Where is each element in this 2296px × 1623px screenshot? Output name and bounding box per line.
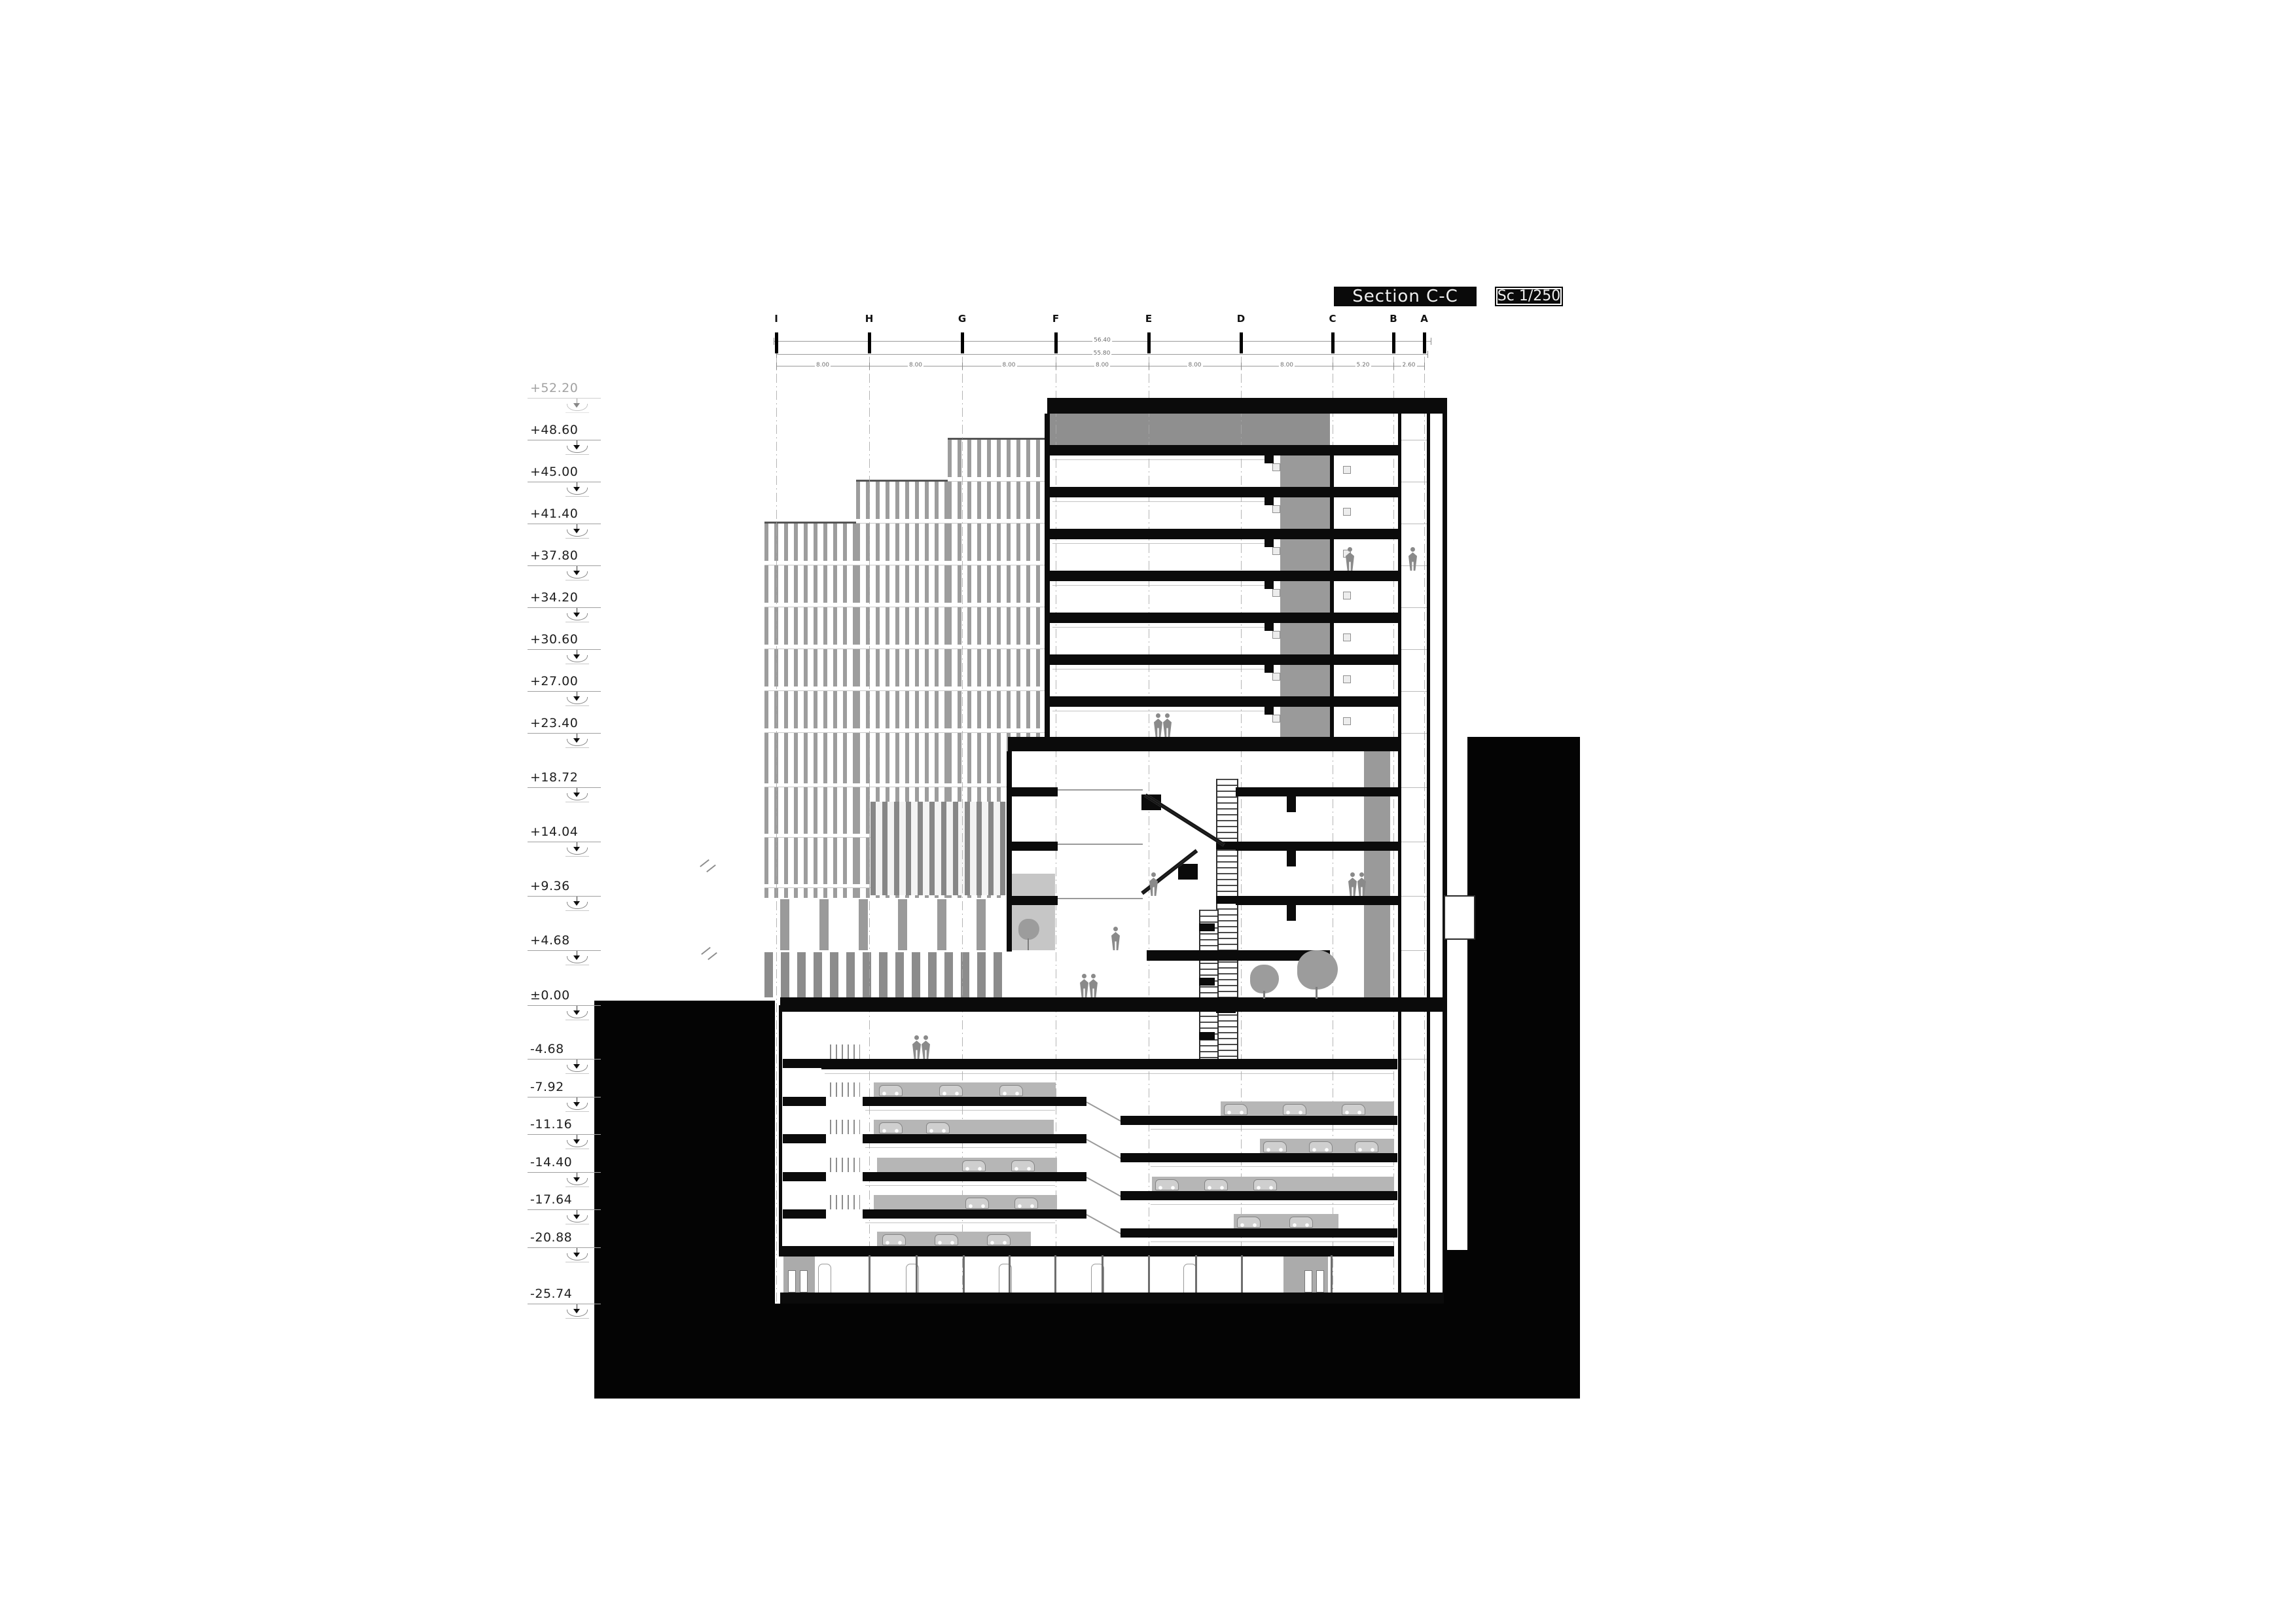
grid-tick: [775, 332, 778, 353]
side-slab-stub: [783, 1209, 826, 1219]
floor-slab: [1236, 842, 1398, 851]
floor-slab: [1050, 571, 1398, 581]
parking-row: [874, 1120, 1054, 1134]
grid-line-H: [869, 357, 870, 1312]
grid-tick: [1054, 332, 1058, 353]
grid-line-A: [1424, 357, 1425, 1312]
ramp-stub: [1058, 1134, 1086, 1143]
partition-wall: [1195, 1255, 1197, 1293]
double-door: [1316, 1270, 1324, 1293]
facade-pier: [977, 899, 986, 950]
floor-slab: [1050, 654, 1398, 665]
floor-slab: [1008, 842, 1058, 851]
partition-wall: [1009, 1255, 1011, 1293]
parking-car: [939, 1085, 963, 1096]
facade-pier: [859, 899, 868, 950]
ramp-stub: [1058, 1172, 1086, 1181]
facade-pier: [937, 899, 946, 950]
dim-tick: [1431, 338, 1431, 345]
floor-slab: [1050, 445, 1398, 455]
shaft-landing-line: [1401, 842, 1427, 842]
tower-left-wall: [1045, 414, 1050, 737]
reference-dash: [708, 952, 717, 960]
wall-box: [1444, 895, 1475, 940]
grid-tick: [868, 332, 871, 353]
dim-bay-value: 8.00: [815, 362, 831, 368]
shaft-landing-line: [1401, 896, 1427, 897]
ceiling-line: [1151, 1241, 1394, 1242]
scale-label: Sc 1/250: [1496, 288, 1562, 305]
facade-pier: [819, 899, 829, 950]
person-figure: [1348, 872, 1357, 896]
floor-slab: [1050, 529, 1398, 539]
dim-tick: [869, 363, 870, 370]
reference-dash: [700, 859, 709, 867]
grid-tick: [1331, 332, 1335, 353]
dim-tick: [1056, 363, 1056, 370]
parking-car: [879, 1085, 903, 1096]
ramp-line: [1086, 1101, 1121, 1122]
parking-row: [1260, 1139, 1394, 1153]
ground-colonnade: [764, 952, 1008, 997]
floor-slab: [1008, 896, 1058, 905]
parking-car: [935, 1234, 958, 1245]
wall-pier: [1265, 446, 1274, 463]
tree-trunk: [1263, 991, 1265, 999]
ceiling-line: [1052, 543, 1265, 544]
parking-slab-right: [1149, 1228, 1397, 1238]
dim-tick: [1393, 363, 1394, 370]
double-door: [1304, 1270, 1312, 1293]
floor-slab: [1050, 487, 1398, 497]
person-figure: [1111, 927, 1120, 950]
partition-wall: [1054, 1255, 1056, 1293]
parking-car: [999, 1085, 1023, 1096]
facade-stripes: [764, 737, 856, 898]
core-door: [1272, 547, 1280, 555]
room-door: [1343, 466, 1351, 474]
ceiling-line: [1151, 1166, 1394, 1167]
person-figure: [912, 1035, 921, 1059]
floor-slab: [1236, 787, 1398, 796]
ceiling-line: [1052, 711, 1265, 711]
parking-row: [1152, 1177, 1394, 1191]
roof-slab: [1047, 398, 1447, 414]
person-figure: [1163, 713, 1172, 737]
double-door: [800, 1270, 808, 1293]
facade-pier: [898, 899, 907, 950]
basement-slab: [821, 1059, 1397, 1069]
shaft-landing-line: [1401, 1059, 1427, 1060]
side-slab-stub: [783, 1059, 826, 1068]
grid-tick: [1240, 332, 1243, 353]
facade-stripes-dark: [870, 802, 1008, 895]
partition-wall: [1331, 1255, 1333, 1293]
dim-tick: [776, 363, 777, 370]
ceiling-line: [865, 1185, 1055, 1186]
parking-row: [1234, 1214, 1338, 1228]
side-stair-hatch: [830, 1158, 860, 1172]
dim-tick: [1149, 363, 1149, 370]
ramp-stub: [1121, 1191, 1149, 1200]
escalator-landing: [1178, 864, 1198, 880]
person-figure: [1089, 974, 1098, 997]
core-door: [1272, 589, 1280, 597]
side-slab-stub: [783, 1172, 826, 1181]
parking-car: [1204, 1179, 1228, 1190]
parking-car: [987, 1234, 1011, 1245]
dim-tick: [1424, 363, 1425, 370]
shaft-wall: [1398, 411, 1401, 1301]
parking-car: [1011, 1160, 1035, 1171]
partition-wall: [963, 1255, 965, 1293]
dim-bay-value: 8.00: [1279, 362, 1295, 368]
parking-car: [1224, 1104, 1247, 1115]
door-jamb: [1287, 851, 1296, 866]
parking-car: [1263, 1141, 1287, 1152]
wall-pier: [1265, 656, 1274, 673]
shaft-landing-line: [1401, 691, 1427, 692]
person-figure: [922, 1035, 930, 1059]
parking-slab-right: [1149, 1116, 1397, 1125]
parking-row: [1221, 1101, 1394, 1116]
grid-letter-G: G: [958, 313, 966, 325]
shaft-landing-line: [1401, 787, 1427, 788]
basement-slab: [779, 1246, 1394, 1257]
grid-letter-B: B: [1390, 313, 1397, 325]
tree-canopy: [1297, 950, 1338, 990]
parking-slab-right: [1149, 1191, 1397, 1200]
ramp-stub: [1058, 1209, 1086, 1219]
room-door: [1343, 717, 1351, 725]
ramp-stub: [1058, 1097, 1086, 1106]
ceiling-line: [865, 1147, 1055, 1148]
stair-mid-landing: [1199, 923, 1215, 931]
ramp-line: [1086, 1139, 1121, 1159]
shaft-landing-line: [1401, 440, 1427, 440]
grid-tick: [1423, 332, 1426, 353]
grid-letter-C: C: [1329, 313, 1336, 325]
wall-pier: [1265, 488, 1274, 505]
ceiling-line: [1058, 844, 1143, 845]
ceiling-line: [1052, 669, 1265, 669]
person-figure: [1154, 713, 1162, 737]
parking-row: [874, 1195, 1057, 1209]
parking-slab-left: [863, 1172, 1058, 1181]
dim-bay-value: 8.00: [1001, 362, 1016, 368]
person-figure: [1346, 547, 1354, 571]
wall-pier: [1265, 530, 1274, 547]
floor-slab: [1236, 896, 1398, 905]
person-figure: [1408, 547, 1417, 571]
parking-row: [877, 1158, 1057, 1172]
door-frame: [1183, 1264, 1196, 1293]
dim-tick: [1427, 351, 1428, 358]
dim-tick: [1333, 363, 1333, 370]
right-wall: [1443, 398, 1447, 1304]
tree-canopy: [1250, 965, 1279, 993]
parking-slab-left: [863, 1097, 1058, 1106]
ceiling-line: [1151, 1204, 1394, 1205]
parking-car: [1309, 1141, 1333, 1152]
shaft-landing-line: [1401, 649, 1427, 650]
drawing-title-bar: Section C-C: [1334, 287, 1477, 306]
parking-car: [882, 1234, 906, 1245]
wall-pier: [1265, 572, 1274, 589]
ceiling-line: [825, 1073, 1394, 1074]
tree-trunk: [1028, 938, 1029, 950]
dim-tick: [774, 338, 774, 345]
facade-stripes: [856, 482, 948, 737]
reference-dash: [701, 947, 711, 955]
grid-letter-H: H: [865, 313, 874, 325]
parking-car: [1283, 1104, 1306, 1115]
facade-top-edge: [764, 522, 856, 524]
ceiling-line: [1052, 585, 1265, 586]
room-door: [1343, 508, 1351, 516]
ceiling-line: [1058, 789, 1143, 791]
shaft-wall: [1427, 411, 1430, 1301]
double-door: [788, 1270, 796, 1293]
floor-slab: [1050, 613, 1398, 623]
dim-overall-mid-value: 55.80: [1092, 350, 1112, 357]
escalator: [1144, 793, 1225, 846]
grid-letter-A: A: [1420, 313, 1428, 325]
partition-wall: [1102, 1255, 1103, 1293]
tree-trunk: [1316, 987, 1318, 999]
grid-tick: [961, 332, 964, 353]
parking-car: [962, 1160, 986, 1171]
facade-stripes: [764, 524, 856, 737]
grid-letter-F: F: [1052, 313, 1059, 325]
grid-tick: [1147, 332, 1151, 353]
parking-car: [1155, 1179, 1179, 1190]
person-figure: [1357, 872, 1366, 896]
dim-bay-value: 8.00: [908, 362, 924, 368]
room-door: [1343, 675, 1351, 683]
stair-shaft: [1216, 779, 1238, 1060]
facade-pier: [780, 899, 789, 950]
dim-bay-value: 8.00: [1187, 362, 1202, 368]
stair-mid-landing: [1199, 978, 1215, 986]
core-door: [1272, 631, 1280, 639]
section-drawing-canvas: Section C-C Sc 1/250 IHGFEDCBA56.4055.80…: [0, 0, 2296, 1623]
side-stair-hatch: [830, 1120, 860, 1134]
core-door: [1272, 463, 1280, 471]
stair-landing: [1216, 950, 1236, 958]
shaft-landing-line: [1401, 733, 1427, 734]
elevator-shaft-gray: [1012, 874, 1055, 950]
mechanical-band: [1050, 411, 1330, 445]
grid-letter-D: D: [1237, 313, 1245, 325]
parking-car: [926, 1122, 950, 1133]
floor-slab: [1008, 787, 1058, 796]
grid-tick: [1392, 332, 1395, 353]
foundation-slab: [780, 1293, 1445, 1304]
core-door: [1272, 673, 1280, 681]
ramp-line: [1086, 1214, 1121, 1234]
core-door: [1272, 715, 1280, 722]
door-frame: [818, 1264, 831, 1293]
parking-car: [1342, 1104, 1365, 1115]
earth-mass: [775, 1304, 1467, 1399]
ceiling-line: [1052, 459, 1265, 460]
wall-pier: [1265, 698, 1274, 715]
shaft-landing-line: [1401, 524, 1427, 524]
ramp-stub: [1121, 1228, 1149, 1238]
parking-car: [1289, 1217, 1313, 1228]
transfer-slab: [1008, 737, 1398, 751]
ceiling-line: [865, 1110, 1055, 1111]
person-figure: [1149, 872, 1158, 896]
parking-car: [965, 1198, 989, 1209]
stair-landing: [1216, 1005, 1236, 1013]
section-title: Section C-C: [1334, 287, 1477, 306]
grid-line-D: [1241, 357, 1242, 1312]
earth-mass: [594, 1001, 775, 1399]
grid-line-E: [1149, 357, 1149, 1312]
core-door: [1272, 505, 1280, 513]
atrium-left-wall: [1007, 751, 1012, 952]
ground-slab: [780, 997, 1445, 1012]
parking-car: [879, 1122, 903, 1133]
scale-box: Sc 1/250: [1495, 287, 1563, 306]
parking-row: [877, 1232, 1031, 1246]
grid-line-I: [776, 357, 777, 1312]
side-stair-hatch: [830, 1044, 860, 1059]
ramp-stub: [1121, 1116, 1149, 1125]
ceiling-line: [1151, 1129, 1394, 1130]
ceiling-line: [1058, 898, 1143, 899]
ceiling-line: [1052, 501, 1265, 502]
room-door: [1343, 633, 1351, 641]
partition-wall: [1148, 1255, 1150, 1293]
dim-tick: [962, 363, 963, 370]
parking-car: [1237, 1217, 1261, 1228]
partition-wall: [869, 1255, 870, 1293]
ramp-line: [1086, 1177, 1121, 1197]
facade-top-edge: [856, 480, 948, 482]
parking-car: [1014, 1198, 1038, 1209]
floor-slab: [1050, 696, 1398, 707]
grid-letter-I: I: [774, 313, 778, 325]
earth-mass: [1467, 737, 1580, 1399]
basement-left-wall: [779, 1005, 782, 1247]
shaft-landing-line: [1401, 950, 1427, 951]
ceiling-line: [865, 1222, 1055, 1223]
dim-bay-value: 2.60: [1401, 362, 1416, 368]
room-door: [1343, 592, 1351, 599]
stair-landing: [1216, 896, 1236, 904]
side-stair-hatch: [830, 1082, 860, 1097]
door-jamb: [1287, 905, 1296, 921]
parking-row: [874, 1082, 1056, 1097]
person-figure: [1080, 974, 1088, 997]
grid-letter-E: E: [1145, 313, 1152, 325]
dim-bay-value: 5.20: [1355, 362, 1371, 368]
parking-slab-left: [863, 1134, 1058, 1143]
dim-overall-top-value: 56.40: [1092, 337, 1112, 344]
partition-wall: [916, 1255, 918, 1293]
reference-dash: [706, 865, 716, 872]
dim-bay-value: 8.00: [1094, 362, 1110, 368]
wall-pier: [1265, 614, 1274, 631]
shaft-landing-line: [1401, 482, 1427, 482]
side-slab-stub: [783, 1134, 826, 1143]
parking-car: [1253, 1179, 1277, 1190]
side-stair-hatch: [830, 1195, 860, 1209]
parking-slab-left: [863, 1209, 1058, 1219]
ramp-stub: [1121, 1153, 1149, 1162]
parking-car: [1355, 1141, 1378, 1152]
door-jamb: [1287, 796, 1296, 812]
ceiling-line: [1052, 627, 1265, 628]
grid-line-B: [1393, 357, 1394, 1312]
dim-tick: [1241, 363, 1242, 370]
side-slab-stub: [783, 1097, 826, 1106]
partition-wall: [1241, 1255, 1243, 1293]
parking-slab-right: [1149, 1153, 1397, 1162]
stair-mid-landing: [1199, 1032, 1215, 1040]
shaft-landing-line: [1401, 607, 1427, 608]
